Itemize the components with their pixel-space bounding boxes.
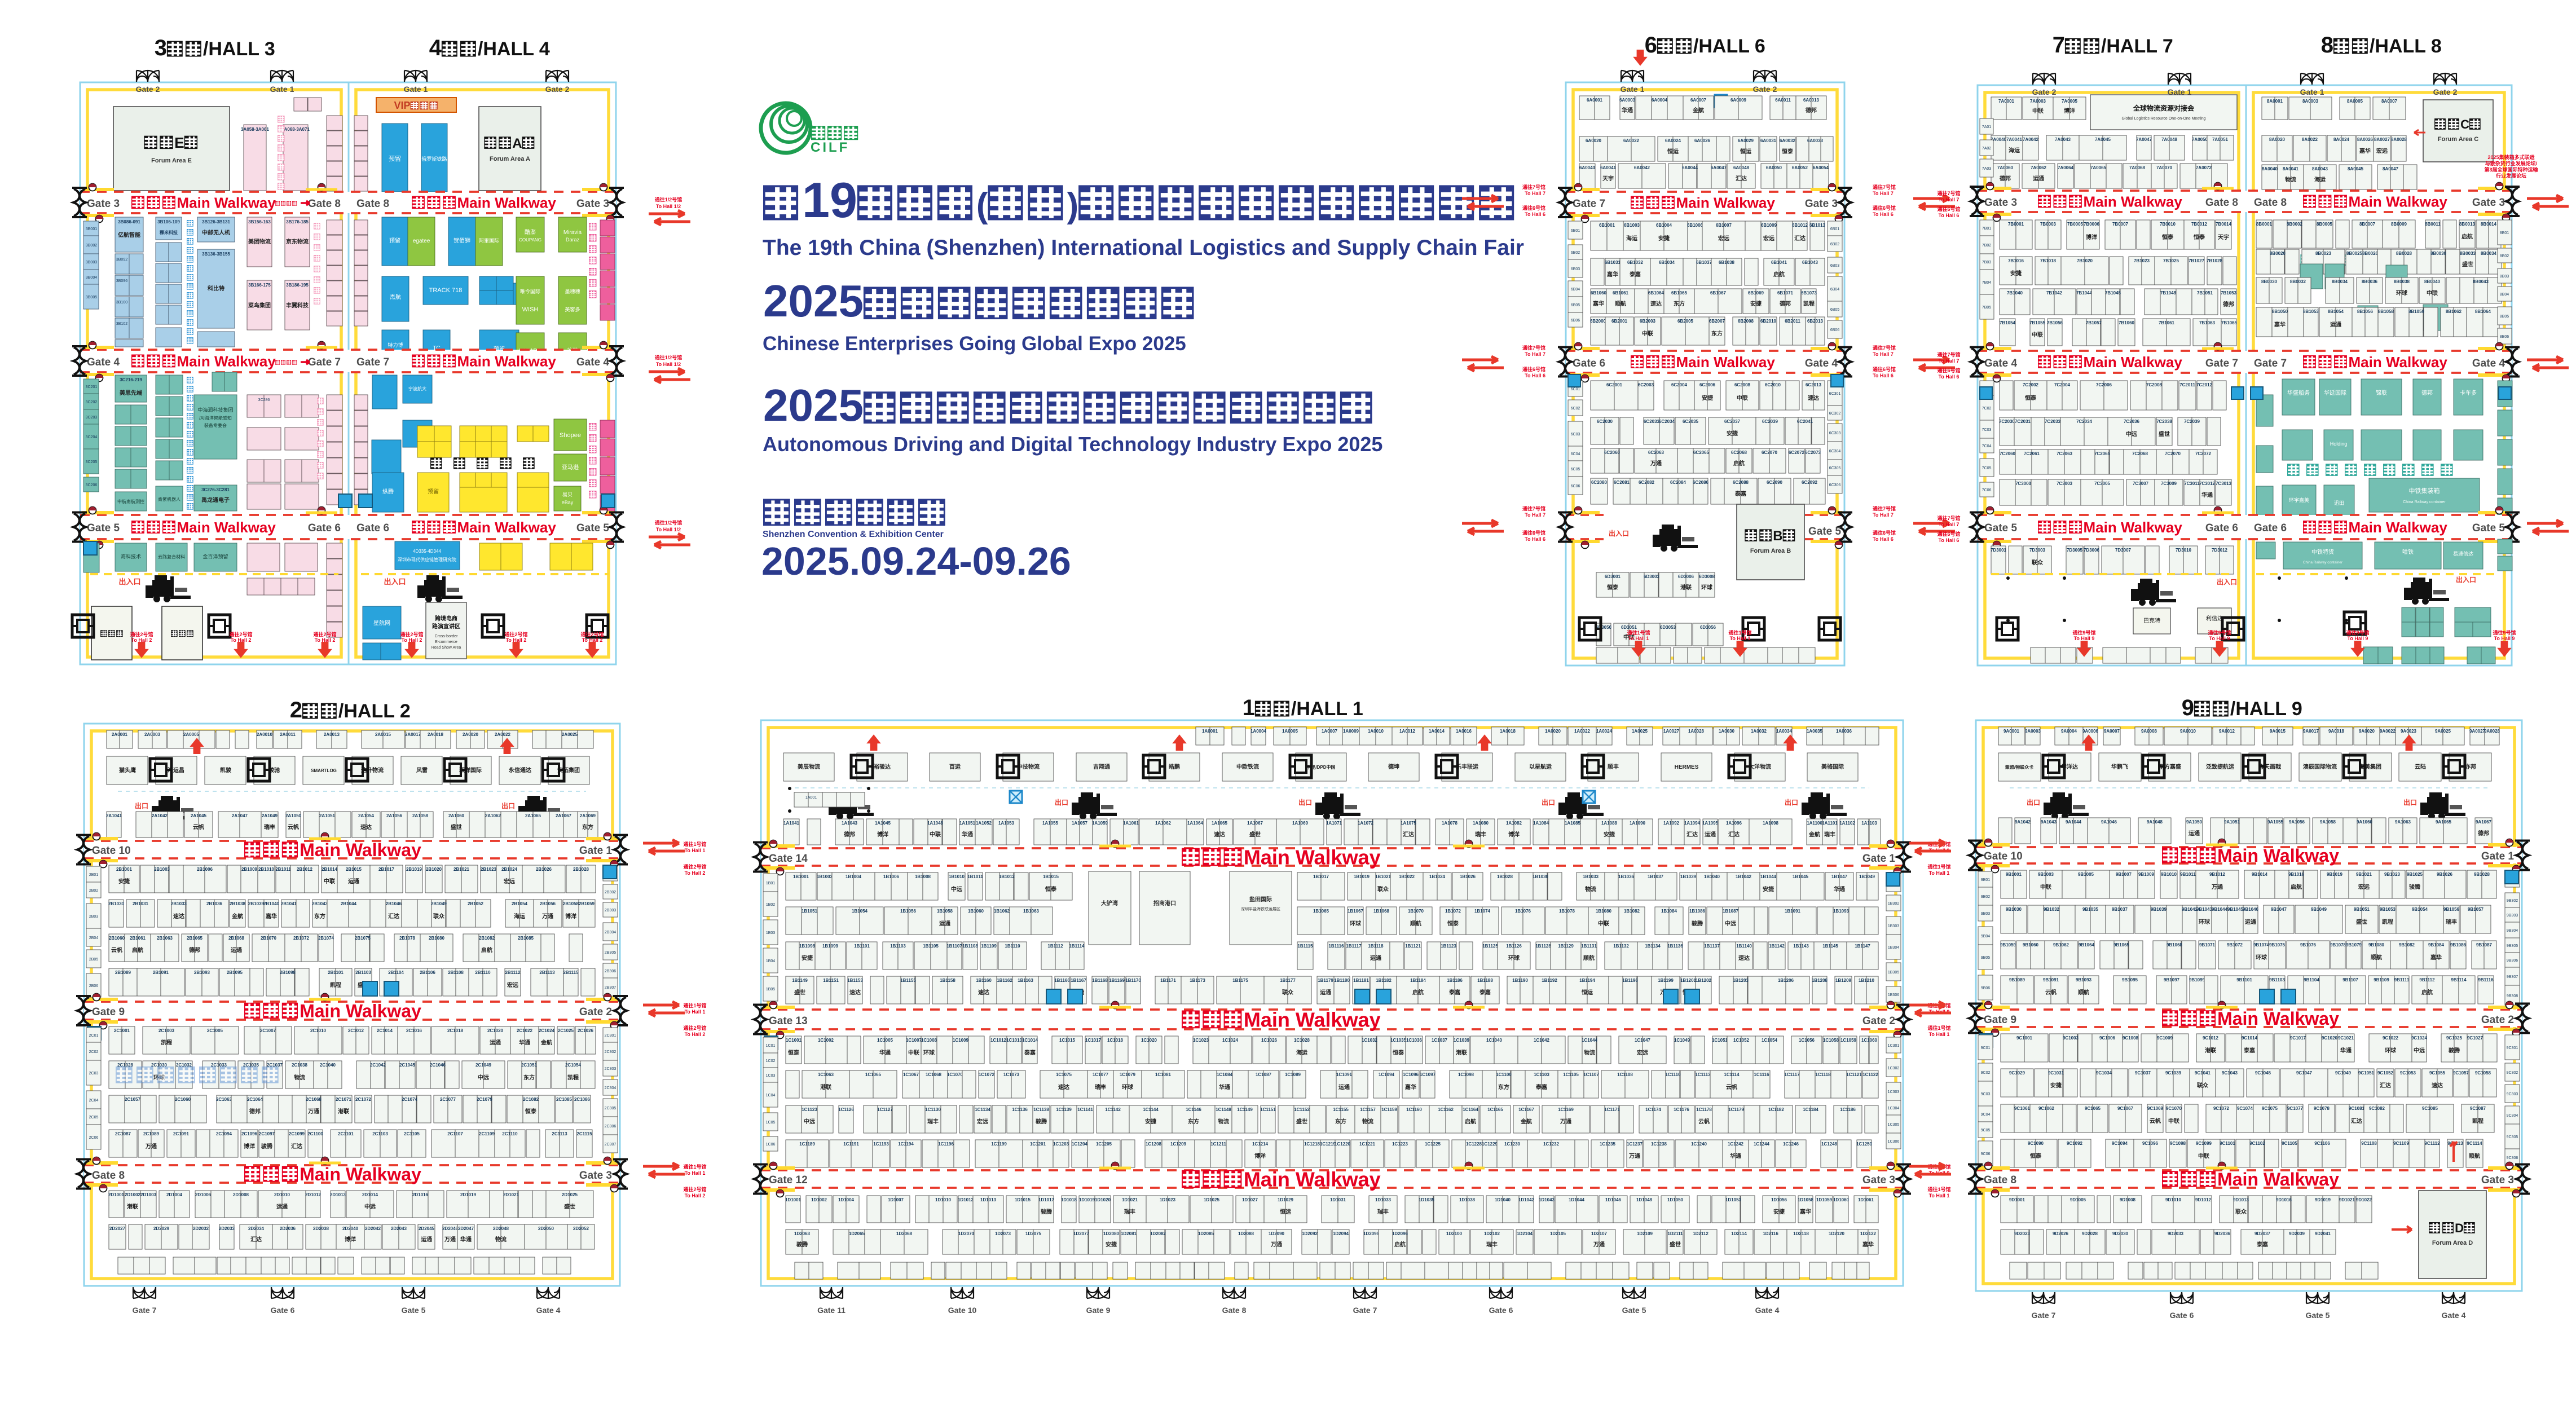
svg-text:CILF: CILF <box>811 140 849 155</box>
svg-text:1B1040: 1B1040 <box>1704 874 1720 879</box>
svg-text:2C1115: 2C1115 <box>576 1131 592 1136</box>
svg-text:2C304: 2C304 <box>605 1086 617 1090</box>
svg-text:1D1010: 1D1010 <box>935 1197 952 1202</box>
svg-text:7B1028: 7B1028 <box>2207 258 2223 263</box>
svg-text:1B1028: 1B1028 <box>1497 874 1513 879</box>
svg-text:Main Walkway: Main Walkway <box>300 1164 421 1184</box>
svg-text:2B01: 2B01 <box>89 873 98 877</box>
svg-text:嘉华: 嘉华 <box>1592 300 1604 307</box>
svg-text:6C2010: 6C2010 <box>1765 382 1781 387</box>
svg-text:亚马逊: 亚马逊 <box>562 464 579 471</box>
svg-text:2B1030: 2B1030 <box>108 901 125 906</box>
svg-text:6A0044: 6A0044 <box>1682 165 1698 170</box>
svg-text:6B03: 6B03 <box>1571 267 1580 271</box>
svg-text:6: 6 <box>1645 33 1657 58</box>
svg-text:中联: 中联 <box>2032 107 2044 114</box>
svg-text:物流: 物流 <box>2285 176 2296 183</box>
svg-text:2C1040: 2C1040 <box>320 1063 336 1068</box>
svg-text:7A0042: 7A0042 <box>2023 137 2039 142</box>
svg-text:2B1024: 2B1024 <box>501 867 518 872</box>
svg-text:2C1089: 2C1089 <box>143 1131 160 1136</box>
svg-text:1B1177: 1B1177 <box>1280 978 1296 983</box>
svg-text:1C1052: 1C1052 <box>1733 1038 1750 1043</box>
svg-text:1B1162: 1B1162 <box>997 978 1012 983</box>
svg-text:6B2001: 6B2001 <box>1611 319 1628 324</box>
svg-text:1C1235: 1C1235 <box>1600 1142 1616 1147</box>
svg-text:1D1012: 1D1012 <box>958 1197 974 1202</box>
svg-text:1B1140: 1B1140 <box>1736 944 1752 949</box>
svg-text:1B1001: 1B1001 <box>793 874 809 879</box>
svg-text:云帆: 云帆 <box>1698 1118 1710 1125</box>
svg-text:1C1023: 1C1023 <box>1193 1038 1209 1043</box>
svg-text:1C1144: 1C1144 <box>1143 1107 1159 1112</box>
svg-text:瑞丰: 瑞丰 <box>927 1118 939 1125</box>
svg-text:1C1127: 1C1127 <box>877 1107 893 1112</box>
svg-text:2D2040: 2D2040 <box>342 1226 359 1231</box>
svg-text:1A1067: 1A1067 <box>1247 821 1263 826</box>
svg-text:安捷: 安捷 <box>2010 270 2022 277</box>
svg-text:1C1114: 1C1114 <box>1724 1072 1740 1077</box>
svg-text:1D1046: 1D1046 <box>1605 1197 1622 1202</box>
svg-text:7B1053: 7B1053 <box>2221 290 2237 296</box>
svg-text:1A0032: 1A0032 <box>1751 729 1767 734</box>
svg-text:2B05: 2B05 <box>89 958 98 962</box>
svg-text:6B06: 6B06 <box>1571 319 1580 323</box>
svg-text:Gate 2: Gate 2 <box>2433 87 2458 96</box>
svg-text:1A1051: 1A1051 <box>959 821 976 826</box>
svg-text:3C204: 3C204 <box>86 435 98 439</box>
svg-text:2C1024: 2C1024 <box>539 1028 555 1033</box>
svg-text:7D3012: 7D3012 <box>2212 548 2228 553</box>
svg-text:1B303: 1B303 <box>1888 924 1899 928</box>
svg-text:3B106-109: 3B106-109 <box>157 219 180 224</box>
svg-text:6B1012: 6B1012 <box>1792 223 1808 228</box>
svg-text:1C1184: 1C1184 <box>1803 1107 1818 1112</box>
svg-text:美思先端: 美思先端 <box>120 389 142 396</box>
svg-text:2D2029: 2D2029 <box>153 1226 170 1231</box>
svg-text:1C1240: 1C1240 <box>1691 1142 1707 1147</box>
svg-text:1A0028: 1A0028 <box>1688 729 1705 734</box>
svg-text:6B06: 6B06 <box>1830 328 1839 332</box>
svg-text:1B1103: 1B1103 <box>890 944 906 949</box>
svg-text:万通: 万通 <box>145 1143 157 1150</box>
svg-text:1C1060: 1C1060 <box>1861 1038 1878 1043</box>
svg-text:Forum Area B: Forum Area B <box>1750 548 1791 554</box>
svg-text:1C1165: 1C1165 <box>1487 1107 1503 1112</box>
svg-text:1C1105: 1C1105 <box>1563 1072 1579 1077</box>
svg-text:1C1065: 1C1065 <box>865 1072 882 1077</box>
svg-text:6C302: 6C302 <box>1829 412 1841 416</box>
svg-text:港联: 港联 <box>1456 1049 1467 1056</box>
svg-text:Gate 3: Gate 3 <box>1805 198 1838 210</box>
svg-text:顺航: 顺航 <box>1615 300 1626 307</box>
svg-text:Gate 8: Gate 8 <box>356 198 389 210</box>
svg-text:1C1199: 1C1199 <box>991 1142 1007 1147</box>
svg-text:通往2号馆: 通往2号馆 <box>229 631 252 637</box>
svg-text:6D3003: 6D3003 <box>1644 574 1660 579</box>
svg-text:1B1132: 1B1132 <box>1613 944 1629 949</box>
svg-text:1C01: 1C01 <box>766 1044 776 1048</box>
svg-text:1B1181: 1B1181 <box>1353 978 1369 983</box>
svg-text:6C305: 6C305 <box>1829 466 1841 470</box>
svg-text:骏腾: 骏腾 <box>1036 1118 1047 1125</box>
svg-text:6A0042: 6A0042 <box>1634 165 1650 170</box>
svg-text:2B04: 2B04 <box>89 936 98 940</box>
svg-text:2C1022: 2C1022 <box>517 1028 533 1033</box>
svg-text:德邦: 德邦 <box>2421 389 2433 396</box>
svg-text:COUPANG: COUPANG <box>519 237 541 243</box>
svg-text:6A0031: 6A0031 <box>1760 138 1777 143</box>
svg-text:Main Walkway: Main Walkway <box>1244 1008 1381 1031</box>
svg-text:7C3005: 7C3005 <box>2094 481 2111 486</box>
svg-text:WISH: WISH <box>522 306 539 313</box>
svg-text:华盛船务: 华盛船务 <box>2287 389 2310 396</box>
svg-text:1B1080: 1B1080 <box>1596 909 1612 914</box>
svg-text:1B1065: 1B1065 <box>1313 909 1329 914</box>
svg-text:金航: 金航 <box>540 1039 552 1046</box>
svg-text:6B1003: 6B1003 <box>1624 223 1640 228</box>
svg-text:1C1248: 1C1248 <box>1821 1142 1838 1147</box>
svg-text:1B1015: 1B1015 <box>1043 874 1059 879</box>
svg-text:2B1044: 2B1044 <box>341 901 357 906</box>
svg-text:嘉华: 嘉华 <box>1404 1083 1416 1091</box>
svg-text:6D3008: 6D3008 <box>1699 574 1715 579</box>
svg-text:1C1182: 1C1182 <box>1768 1107 1784 1112</box>
svg-text:1A1103: 1A1103 <box>1861 821 1877 826</box>
svg-text:1B1184: 1B1184 <box>1410 978 1426 983</box>
svg-text:瑞丰: 瑞丰 <box>1475 831 1486 838</box>
svg-text:): ) <box>1067 186 1079 225</box>
svg-text:速达: 速达 <box>1214 831 1225 838</box>
svg-text:1B306: 1B306 <box>1888 993 1899 997</box>
svg-text:2A0011: 2A0011 <box>280 732 296 737</box>
svg-text:云帆: 云帆 <box>193 823 204 831</box>
svg-text:Main Walkway: Main Walkway <box>300 840 421 860</box>
svg-text:1B1087: 1B1087 <box>1723 909 1739 914</box>
svg-text:2C1074: 2C1074 <box>402 1097 418 1102</box>
svg-text:通往9号馆: 通往9号馆 <box>2072 629 2095 636</box>
svg-text:8B0026: 8B0026 <box>2362 251 2379 256</box>
svg-text:1A1052: 1A1052 <box>976 821 992 826</box>
svg-text:1D2120: 1D2120 <box>1829 1231 1845 1236</box>
svg-text:1C1040: 1C1040 <box>1486 1038 1503 1043</box>
svg-text:2B1110: 2B1110 <box>475 970 491 975</box>
svg-text:中联: 中联 <box>1642 330 1653 337</box>
svg-text:1A1075: 1A1075 <box>1401 821 1417 826</box>
svg-text:To Hall 1/2: To Hall 1/2 <box>656 527 681 532</box>
svg-text:Main Walkway: Main Walkway <box>2084 354 2183 371</box>
svg-text:7C2072: 7C2072 <box>2195 451 2212 456</box>
svg-text:1B1179: 1B1179 <box>1318 978 1333 983</box>
svg-text:8A0045: 8A0045 <box>2348 166 2364 171</box>
svg-text:2C305: 2C305 <box>605 1107 617 1110</box>
svg-text:2C1110: 2C1110 <box>502 1131 518 1136</box>
svg-text:1C1121: 1C1121 <box>1846 1072 1862 1077</box>
svg-text:1B1026: 1B1026 <box>1460 874 1476 879</box>
svg-text:通往2号馆: 通往2号馆 <box>400 631 423 637</box>
svg-text:1C1220: 1C1220 <box>1335 1142 1351 1147</box>
svg-text:唯今国际: 唯今国际 <box>520 288 540 294</box>
svg-text:1C1091: 1C1091 <box>1336 1072 1353 1077</box>
svg-text:第3届全球国际特种运输: 第3届全球国际特种运输 <box>2484 166 2538 173</box>
svg-text:德邦: 德邦 <box>1999 175 2011 182</box>
svg-text:Gate 14: Gate 14 <box>769 853 808 865</box>
svg-text:华通: 华通 <box>1622 107 1633 114</box>
svg-text:6B2003: 6B2003 <box>1640 319 1656 324</box>
svg-text:安捷: 安捷 <box>1727 430 1738 437</box>
svg-text:1A1071: 1A1071 <box>1326 821 1342 826</box>
svg-text:1D1058: 1D1058 <box>1798 1197 1814 1202</box>
svg-text:华通: 华通 <box>1834 885 1845 893</box>
svg-text:1C1193: 1C1193 <box>873 1142 889 1147</box>
svg-text:China Railway container: China Railway container <box>2403 500 2446 504</box>
svg-text:1B1070: 1B1070 <box>1408 909 1424 914</box>
svg-text:2B1068: 2B1068 <box>228 936 245 941</box>
svg-text:1C1159: 1C1159 <box>1381 1107 1397 1112</box>
svg-text:7B1016: 7B1016 <box>2008 258 2024 263</box>
svg-text:6D3051: 6D3051 <box>1621 625 1637 630</box>
svg-text:Main Walkway: Main Walkway <box>457 194 557 211</box>
svg-text:2C1063: 2C1063 <box>216 1097 232 1102</box>
svg-text:1B1151: 1B1151 <box>823 978 839 983</box>
svg-text:6C2073: 6C2073 <box>1805 450 1821 455</box>
svg-text:1A1084: 1A1084 <box>1533 821 1549 826</box>
svg-text:1A1057: 1A1057 <box>1072 821 1088 826</box>
svg-text:2C1107: 2C1107 <box>447 1131 463 1136</box>
svg-text:出口: 出口 <box>1298 798 1312 807</box>
svg-text:安捷: 安捷 <box>1604 831 1615 838</box>
svg-text:通往6号馆: 通往6号馆 <box>1937 367 1960 373</box>
svg-text:2D1016: 2D1016 <box>412 1192 429 1197</box>
svg-text:1C1155: 1C1155 <box>1333 1107 1349 1112</box>
svg-text:1A0018: 1A0018 <box>1500 729 1516 734</box>
svg-text:Main Walkway: Main Walkway <box>2084 519 2183 536</box>
svg-text:预留: 预留 <box>389 155 401 162</box>
svg-text:6A0052: 6A0052 <box>1792 165 1808 170</box>
svg-text:盐田国际: 盐田国际 <box>1249 896 1272 903</box>
svg-text:2B02: 2B02 <box>89 889 98 893</box>
svg-text:出入口: 出入口 <box>1609 529 1629 537</box>
svg-text:1B1022: 1B1022 <box>1399 874 1415 879</box>
svg-text:1B1147: 1B1147 <box>1855 944 1870 949</box>
svg-text:凯程: 凯程 <box>1803 300 1815 307</box>
svg-text:7B0010: 7B0010 <box>2160 222 2176 227</box>
svg-text:联众: 联众 <box>1282 989 1294 996</box>
svg-text:6C2082: 6C2082 <box>1639 480 1655 485</box>
svg-text:1B1121: 1B1121 <box>1405 944 1421 949</box>
svg-text:7C06: 7C06 <box>1982 488 1992 492</box>
svg-text:/HALL 7: /HALL 7 <box>2101 36 2173 57</box>
svg-text:1C1205: 1C1205 <box>1096 1142 1112 1147</box>
svg-text:2A1042: 2A1042 <box>152 813 168 818</box>
svg-text:7C2070: 7C2070 <box>2165 451 2181 456</box>
svg-text:华通: 华通 <box>1219 1083 1230 1091</box>
svg-text:1B1196: 1B1196 <box>1622 978 1638 983</box>
svg-text:Holding: Holding <box>2330 441 2348 447</box>
svg-text:8B06: 8B06 <box>2500 335 2509 339</box>
svg-text:Gate 1: Gate 1 <box>2300 87 2324 96</box>
svg-text:Main Walkway: Main Walkway <box>2349 519 2448 536</box>
svg-text:1B1054: 1B1054 <box>852 909 868 914</box>
svg-text:1D1017: 1D1017 <box>1038 1197 1055 1202</box>
svg-text:1C1232: 1C1232 <box>1543 1142 1560 1147</box>
svg-text:6C303: 6C303 <box>1829 431 1841 435</box>
svg-text:通往7号馆: 通往7号馆 <box>1522 345 1545 351</box>
svg-text:2B1043: 2B1043 <box>312 901 328 906</box>
svg-text:德坤: 德坤 <box>1388 763 1399 770</box>
svg-text:1C1146: 1C1146 <box>1186 1107 1201 1112</box>
svg-text:7C3000: 7C3000 <box>2015 481 2032 486</box>
svg-text:1C1171: 1C1171 <box>1604 1107 1620 1112</box>
svg-text:1B1190: 1B1190 <box>1512 978 1528 983</box>
svg-text:1C1056: 1C1056 <box>1799 1038 1815 1043</box>
svg-text:7D3003: 7D3003 <box>2029 548 2046 553</box>
svg-text:1A0014: 1A0014 <box>1429 729 1445 734</box>
svg-text:7B1025: 7B1025 <box>2163 258 2179 263</box>
svg-text:1C1229: 1C1229 <box>1482 1142 1498 1147</box>
svg-text:2B1052: 2B1052 <box>468 901 484 906</box>
svg-text:1C1238: 1C1238 <box>1651 1142 1667 1147</box>
svg-text:通往1号馆: 通往1号馆 <box>1728 629 1751 636</box>
svg-text:1C1005: 1C1005 <box>877 1038 893 1043</box>
svg-text:7C2036: 7C2036 <box>2124 419 2140 424</box>
svg-text:1B1067: 1B1067 <box>1348 909 1364 914</box>
svg-text:1B1112: 1B1112 <box>1047 944 1063 949</box>
svg-text:物流: 物流 <box>1584 1049 1595 1056</box>
svg-text:汇达: 汇达 <box>1736 175 1747 182</box>
svg-text:Gate 6: Gate 6 <box>2205 522 2238 534</box>
svg-text:汇达: 汇达 <box>1403 831 1414 838</box>
svg-text:egatee: egatee <box>413 238 430 244</box>
svg-text:1C301: 1C301 <box>1888 1044 1900 1048</box>
svg-text:1C1221: 1C1221 <box>1359 1142 1376 1147</box>
svg-text:风雷: 风雷 <box>416 767 428 774</box>
svg-text:装备专委会: 装备专委会 <box>204 422 227 428</box>
svg-text:7B1048: 7B1048 <box>2160 290 2177 296</box>
svg-text:1C1002: 1C1002 <box>818 1038 834 1043</box>
svg-text:1D1020: 1D1020 <box>1095 1197 1111 1202</box>
svg-text:嘉华: 嘉华 <box>265 913 277 920</box>
svg-text:7A0072: 7A0072 <box>2196 165 2212 170</box>
svg-text:1A0009: 1A0009 <box>1343 729 1359 734</box>
svg-text:2D1006: 2D1006 <box>195 1192 212 1197</box>
svg-text:Main Walkway: Main Walkway <box>2349 193 2448 210</box>
svg-text:汇达: 汇达 <box>388 913 399 920</box>
svg-text:6C2004: 6C2004 <box>1671 382 1688 387</box>
svg-text:6A0050: 6A0050 <box>1766 165 1782 170</box>
svg-text:To Hall 6: To Hall 6 <box>1525 536 1545 542</box>
svg-text:Gate 1: Gate 1 <box>579 845 613 857</box>
svg-text:天宇: 天宇 <box>1602 175 1614 182</box>
svg-text:1C304: 1C304 <box>1888 1107 1900 1110</box>
svg-text:1C03: 1C03 <box>766 1074 776 1078</box>
svg-text:招商港口: 招商港口 <box>1153 900 1176 907</box>
svg-text:1C1204: 1C1204 <box>1072 1142 1088 1147</box>
svg-text:1C1110: 1C1110 <box>1665 1072 1681 1077</box>
svg-text:恒泰: 恒泰 <box>1045 885 1057 893</box>
svg-text:万通: 万通 <box>1560 1118 1571 1125</box>
svg-text:德邦: 德邦 <box>1805 107 1817 114</box>
svg-text:嘉华: 嘉华 <box>1862 1241 1874 1248</box>
svg-text:1C1087: 1C1087 <box>1256 1072 1272 1077</box>
svg-text:Gate 3: Gate 3 <box>576 198 609 210</box>
svg-text:启航: 启航 <box>1733 460 1745 467</box>
svg-text:金百泽预留: 金百泽预留 <box>202 553 228 559</box>
svg-text:Gate 4: Gate 4 <box>1805 358 1838 369</box>
svg-text:6A0011: 6A0011 <box>1775 98 1791 103</box>
svg-text:1A1065: 1A1065 <box>1212 821 1228 826</box>
svg-text:盛世: 盛世 <box>2159 430 2170 438</box>
svg-text:7C2061: 7C2061 <box>2024 451 2040 456</box>
svg-text:速达: 速达 <box>173 913 184 920</box>
svg-text:1D1001: 1D1001 <box>785 1197 802 1202</box>
svg-text:7B1065: 7B1065 <box>2221 320 2238 325</box>
svg-text:2B03: 2B03 <box>89 915 98 919</box>
svg-text:稞米科技: 稞米科技 <box>159 230 178 235</box>
svg-text:万通: 万通 <box>307 1108 319 1115</box>
svg-text:云帆: 云帆 <box>288 823 299 831</box>
svg-text:速达: 速达 <box>1650 300 1662 307</box>
svg-text:2C1012: 2C1012 <box>348 1028 364 1033</box>
svg-text:Gate 4: Gate 4 <box>576 356 610 368</box>
svg-text:3B186-195: 3B186-195 <box>286 283 309 288</box>
svg-text:骏腾: 骏腾 <box>261 1143 273 1150</box>
svg-text:E: E <box>174 134 184 151</box>
svg-text:1C1149: 1C1149 <box>1237 1107 1253 1112</box>
svg-text:宏远: 宏远 <box>1763 235 1774 242</box>
svg-text:1C1063: 1C1063 <box>818 1072 834 1077</box>
svg-text:Gate 8: Gate 8 <box>92 1170 125 1182</box>
svg-text:云路复合材料: 云路复合材料 <box>158 554 185 559</box>
svg-text:6B1006: 6B1006 <box>1687 223 1703 228</box>
svg-text:通往9号馆: 通往9号馆 <box>2346 629 2369 636</box>
svg-text:1C1189: 1C1189 <box>799 1142 815 1147</box>
svg-text:2D2043: 2D2043 <box>391 1226 407 1231</box>
svg-text:8B04: 8B04 <box>2500 293 2509 297</box>
svg-text:亿航智能: 亿航智能 <box>118 231 140 239</box>
svg-text:1D1018: 1D1018 <box>1061 1197 1077 1202</box>
svg-text:美团物流: 美团物流 <box>248 238 271 245</box>
svg-text:2B1103: 2B1103 <box>355 970 371 975</box>
svg-text:恒泰: 恒泰 <box>1607 584 1619 591</box>
svg-text:2025.09.24-09.26: 2025.09.24-09.26 <box>761 539 1071 583</box>
svg-text:2B1061: 2B1061 <box>130 936 146 941</box>
svg-text:1B1036: 1B1036 <box>1618 874 1635 879</box>
svg-text:物流: 物流 <box>1218 1118 1229 1125</box>
svg-text:Main Walkway: Main Walkway <box>1244 845 1381 869</box>
svg-text:通往1/2号馆: 通往1/2号馆 <box>655 354 682 360</box>
svg-text:1D1048: 1D1048 <box>1636 1197 1653 1202</box>
svg-text:2D1004: 2D1004 <box>166 1192 183 1197</box>
svg-text:2A1062: 2A1062 <box>485 813 501 818</box>
svg-text:1B1051: 1B1051 <box>802 909 818 914</box>
svg-text:6C301: 6C301 <box>1829 392 1841 396</box>
svg-text:1D2081: 1D2081 <box>1121 1231 1137 1236</box>
svg-text:3B003: 3B003 <box>86 261 97 265</box>
svg-text:8A0043: 8A0043 <box>2312 166 2328 171</box>
svg-text:7B04: 7B04 <box>1982 281 1991 285</box>
svg-text:2C1038: 2C1038 <box>292 1063 308 1068</box>
svg-text:1C1191: 1C1191 <box>843 1142 859 1147</box>
svg-text:恒泰: 恒泰 <box>1393 1049 1404 1056</box>
svg-text:6A0009: 6A0009 <box>1730 98 1747 103</box>
svg-text:宏远: 宏远 <box>1718 235 1729 242</box>
svg-text:东方: 东方 <box>1498 1083 1509 1091</box>
svg-text:1B304: 1B304 <box>1888 946 1899 950</box>
svg-text:8A0041: 8A0041 <box>2283 166 2299 171</box>
svg-text:1C1148: 1C1148 <box>1216 1107 1231 1112</box>
svg-text:瑞丰: 瑞丰 <box>1095 1083 1106 1091</box>
